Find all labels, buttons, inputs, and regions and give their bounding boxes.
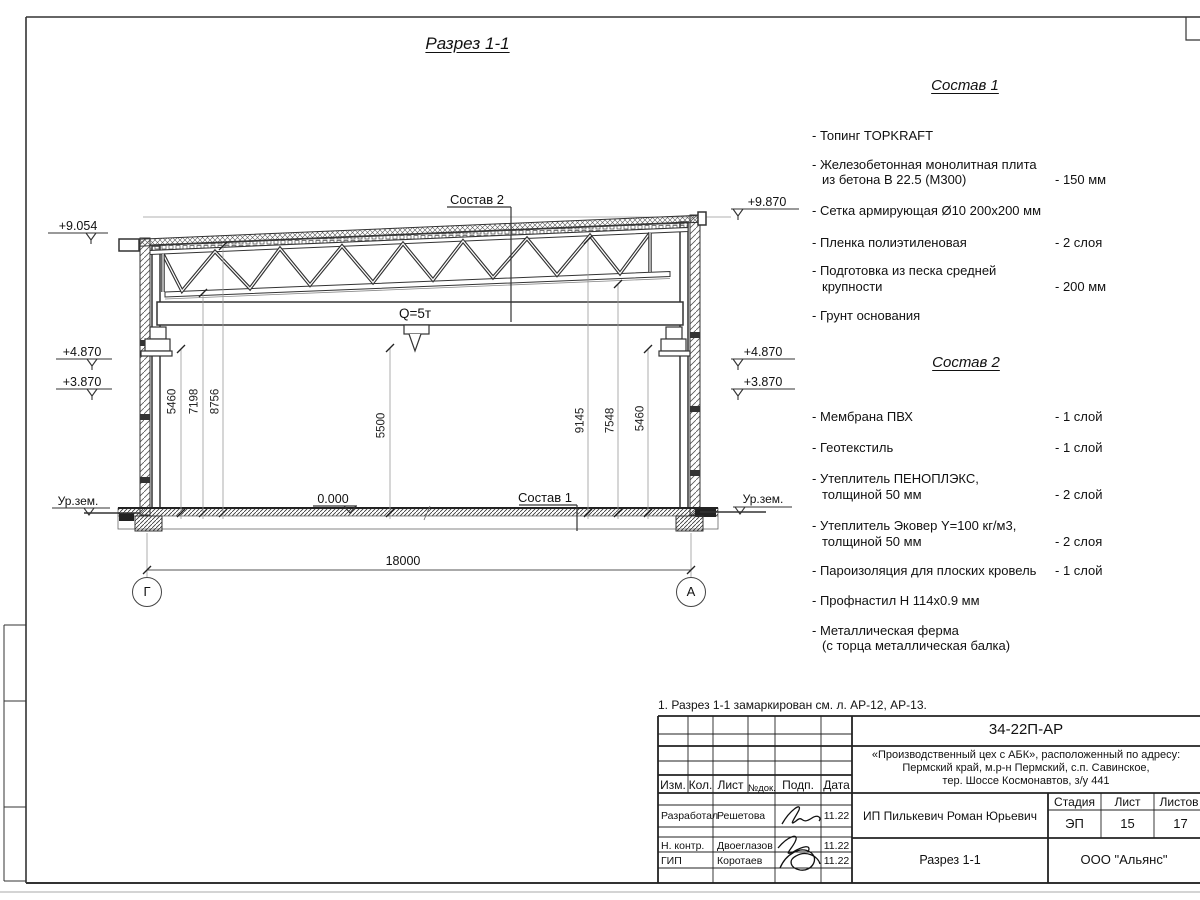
titleblock-project-line3: тер. Шоссе Космонавтов, з/у 441: [852, 775, 1200, 788]
binding-table: [4, 625, 26, 881]
composition1-item: - Подготовка из песка средней: [812, 263, 996, 278]
composition2-title: Состав 2: [906, 355, 1026, 370]
callout-sostav1: Состав 1: [515, 490, 575, 505]
composition1-title: Состав 1: [905, 78, 1025, 93]
composition1-item: - Топинг TOPKRAFT: [812, 128, 933, 143]
signatures: [778, 807, 820, 870]
composition1-item-line2: крупности: [822, 279, 882, 294]
dim-right-9145: 9145: [575, 393, 588, 449]
composition2-item-line2: толщиной 50 мм: [822, 534, 922, 549]
dim-right-5460: 5460: [635, 391, 648, 447]
composition1-value: - 200 мм: [1055, 279, 1106, 294]
titleblock-sheet-label: Лист: [1101, 795, 1154, 810]
elevation-right-top: +9.870: [736, 195, 798, 210]
ground-level-right: Ур.зем.: [732, 492, 794, 507]
crane-capacity-label: Q=5т: [399, 306, 431, 321]
titleblock-col-ndok: №док.: [748, 781, 775, 796]
dim-center-5500: 5500: [376, 398, 389, 454]
composition2-item: - Мембрана ПВХ: [812, 409, 913, 424]
sheet-note: 1. Разрез 1-1 замаркирован см. л. АР-12,…: [658, 698, 927, 713]
foundation-right: [676, 516, 703, 531]
elevation-right-1: +4.870: [732, 345, 794, 360]
crane-hook-icon: [409, 334, 421, 351]
dim-span-18000: 18000: [373, 554, 433, 569]
composition2-item: - Металлическая ферма: [812, 623, 959, 638]
composition2-item-line2: толщиной 50 мм: [822, 487, 922, 502]
titleblock-col-list: Лист: [713, 778, 748, 793]
titleblock-sheet-value: 15: [1101, 816, 1154, 831]
composition1-item-line2: из бетона В 22.5 (М300): [822, 172, 966, 187]
zero-level-label: 0.000: [310, 492, 356, 507]
titleblock-row3-name: Коротаев: [717, 854, 762, 869]
composition2-item-line2: (с торца металлическая балка): [822, 638, 1010, 653]
titleblock-col-kol: Кол.: [688, 778, 713, 793]
composition2-item: - Утеплитель Эковер Y=100 кг/м3,: [812, 518, 1016, 533]
composition1-item: - Грунт основания: [812, 308, 920, 323]
callout-leaders: [313, 207, 577, 531]
elevation-left-1: +4.870: [52, 345, 112, 360]
titleblock-row3-date: 11.22: [821, 854, 852, 869]
axis-label-right: А: [683, 584, 699, 599]
dim-left-8756: 8756: [210, 374, 223, 430]
titleblock-row2-role: Н. контр.: [661, 839, 704, 854]
composition1-item: - Пленка полиэтиленовая: [812, 235, 967, 250]
drawing-sheet: Разрез 1-1 Состав 1 - Топинг TOPKRAFT - …: [0, 0, 1200, 900]
elevation-right-2: +3.870: [732, 375, 794, 390]
dim-right-7548: 7548: [605, 393, 618, 449]
dim-left-5460: 5460: [167, 374, 180, 430]
titleblock-doc-number: 34-22П-АР: [852, 722, 1200, 737]
titleblock-row3-role: ГИП: [661, 854, 682, 869]
titleblock-stage-value: ЭП: [1048, 816, 1101, 831]
foundation-left: [135, 516, 162, 531]
composition2-value: - 1 слой: [1055, 563, 1103, 578]
titleblock-sheets-label: Листов: [1154, 795, 1200, 810]
titleblock-sheets-value: 17: [1154, 816, 1200, 831]
composition1-value: - 2 слоя: [1055, 235, 1102, 250]
axis-bubbles: [133, 578, 706, 607]
dim-left-7198: 7198: [189, 374, 202, 430]
floor: [84, 506, 766, 531]
composition2-value: - 1 слой: [1055, 440, 1103, 455]
titleblock-col-izm: Изм.: [658, 778, 688, 793]
composition2-value: - 1 слой: [1055, 409, 1103, 424]
callout-sostav2: Состав 2: [445, 192, 509, 207]
page-title: Разрез 1-1: [400, 36, 535, 51]
composition1-item: - Сетка армирующая Ø10 200х200 мм: [812, 203, 1041, 218]
titleblock-row2-date: 11.22: [821, 839, 852, 854]
titleblock-row1-role: Разработал: [661, 809, 718, 824]
elevation-left-top: +9.054: [48, 219, 108, 234]
titleblock-project-line1: «Производственный цех с АБК», расположен…: [852, 749, 1200, 762]
titleblock-project-line2: Пермский край, м.р-н Пермский, с.п. Сави…: [852, 762, 1200, 775]
titleblock-row1-date: 11.22: [821, 809, 852, 824]
titleblock-stage-label: Стадия: [1048, 795, 1101, 810]
composition2-item: - Утеплитель ПЕНОПЛЭКС,: [812, 471, 979, 486]
axis-label-left: Г: [139, 584, 155, 599]
titleblock-row2-name: Двоеглазов: [717, 839, 773, 854]
titleblock-row1-name: Решетова: [717, 809, 765, 824]
ground-level-left: Ур.зем.: [48, 494, 108, 509]
composition1-value: - 150 мм: [1055, 172, 1106, 187]
composition2-value: - 2 слой: [1055, 487, 1103, 502]
titleblock-col-data: Дата: [821, 778, 852, 793]
composition2-item: - Геотекстиль: [812, 440, 893, 455]
titleblock-client: ИП Пилькевич Роман Юрьевич: [852, 809, 1048, 824]
composition2-item: - Профнастил Н 114х0.9 мм: [812, 593, 980, 608]
titleblock-col-podp: Подп.: [775, 778, 821, 793]
titleblock-sheet-title: Разрез 1-1: [852, 853, 1048, 868]
titleblock-company: ООО "Альянс": [1048, 852, 1200, 867]
elevation-left-2: +3.870: [52, 375, 112, 390]
composition2-value: - 2 слоя: [1055, 534, 1102, 549]
composition1-item: - Железобетонная монолитная плита: [812, 157, 1037, 172]
composition2-item: - Пароизоляция для плоских кровель: [812, 563, 1036, 578]
